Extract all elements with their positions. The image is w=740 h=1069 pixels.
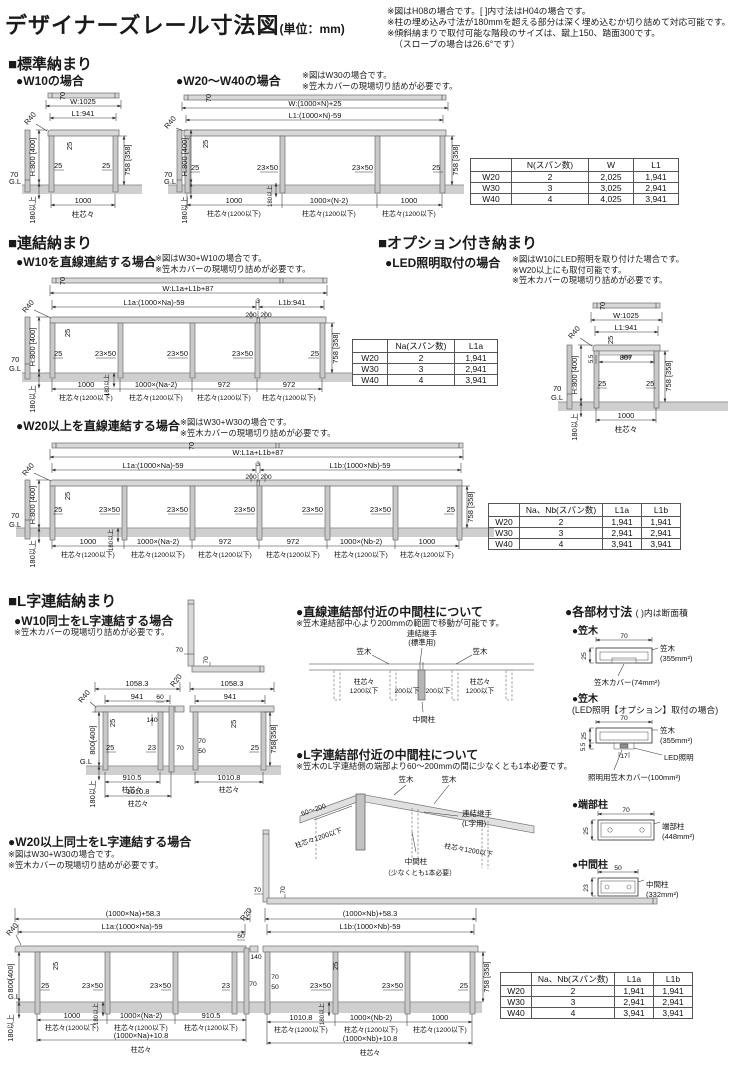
ground bbox=[558, 402, 728, 411]
dim: 25 bbox=[102, 161, 110, 170]
dim-embed: 180以上 bbox=[28, 540, 37, 568]
dim: 23×50 bbox=[167, 349, 188, 358]
dim: 70 bbox=[620, 715, 628, 722]
dim: 23×50 bbox=[82, 981, 103, 990]
dim-l1: L1:(1000×N)-59 bbox=[289, 111, 342, 120]
fence-left bbox=[95, 706, 184, 772]
dim-span: 1000×(Nb-2) bbox=[340, 537, 383, 546]
label: 柱芯々 bbox=[354, 677, 374, 686]
dim: 23×50 bbox=[302, 505, 323, 514]
note: ※図はW30+W30の場合です。 bbox=[180, 417, 335, 428]
dim-height: H:800 [400] bbox=[28, 486, 37, 525]
ground bbox=[16, 528, 494, 537]
dim: 758[358] bbox=[269, 724, 278, 753]
dim: 23×50 bbox=[99, 505, 120, 514]
dim: 25 bbox=[65, 142, 74, 150]
label-gl: G.L bbox=[9, 520, 21, 529]
dim-span: 910.5 bbox=[202, 1011, 221, 1020]
dim-w: 1058.3 bbox=[221, 679, 244, 688]
dim: 200 bbox=[260, 474, 272, 481]
label-span: 柱芯々(1200以下) bbox=[59, 393, 113, 402]
fence bbox=[177, 130, 446, 193]
dim: 5.5 bbox=[589, 354, 595, 363]
dim-l1a: L1a:(1000×Na)-59 bbox=[123, 298, 184, 307]
dim-embed: 180以上 bbox=[103, 374, 111, 396]
dim: 23 bbox=[222, 981, 230, 990]
dim: 758 [358] bbox=[466, 491, 475, 522]
fence bbox=[25, 317, 326, 379]
dim: 25 bbox=[646, 379, 654, 388]
label-mid-post: 中間柱 bbox=[413, 714, 436, 724]
dim: 70 bbox=[280, 886, 287, 894]
dim-l1a: L1a:(1000×Na)-59 bbox=[101, 922, 162, 931]
dim-span: 1000 bbox=[226, 196, 243, 205]
diagram-w2040: 70 W:(1000×N)+25 L1:(1000×N)-59 R40 25 H… bbox=[164, 86, 470, 232]
label-gl: G.L bbox=[9, 177, 21, 186]
note: ※図はW30の場合です。 bbox=[302, 70, 457, 81]
dim: 23×50 bbox=[370, 505, 391, 514]
note: ※笠木カバーの現場切り詰めが必要です。 bbox=[512, 275, 684, 286]
page-title: デザイナーズレール寸法図(単位：mm) bbox=[5, 8, 345, 40]
dim: 25 bbox=[251, 743, 259, 752]
dim: 25 bbox=[108, 719, 117, 727]
table-standard: N(スパン数)WL1 W2022,0251,941 W3033,0252,941… bbox=[470, 158, 679, 205]
note: ※図はH08の場合です。[ ]内寸法はH04の場合です。 bbox=[387, 6, 730, 17]
ground bbox=[22, 185, 142, 194]
dim: 70 bbox=[271, 974, 279, 981]
label-span: 柱芯々 bbox=[615, 424, 638, 434]
w10c-notes: ※図はW30+W10の場合です。 ※笠木カバーの現場切り詰めが必要です。 bbox=[155, 253, 310, 274]
cap-rail-plan bbox=[52, 278, 327, 283]
dim: 758 [358] bbox=[482, 961, 491, 992]
dim-span: 1000 bbox=[401, 196, 418, 205]
dim-l1a: L1a:(1000×Na)-59 bbox=[122, 461, 183, 470]
dim: 70 bbox=[253, 887, 261, 894]
label-span: 柱芯々(1200以下) bbox=[184, 1023, 238, 1032]
diagram-w20-L: 70 70 R20 bbox=[8, 828, 668, 1069]
sub-title-parts: ●各部材寸法 ( )内は断面積 bbox=[565, 603, 688, 620]
dim-height: H:800 [400] bbox=[28, 328, 37, 367]
ground bbox=[86, 766, 281, 775]
table-row: W2021,941 bbox=[353, 353, 498, 364]
dim: 60 bbox=[237, 933, 245, 940]
dim-span: 972 bbox=[287, 537, 300, 546]
dim: 23×50 bbox=[352, 163, 373, 172]
label: 1200以下 bbox=[350, 687, 379, 695]
section-title-option: ■オプション付き納まり bbox=[378, 232, 537, 253]
dim-span: 1000 bbox=[618, 411, 635, 420]
diagram-mid-post-straight: 連結継手 (標準用) 笠木 笠木 柱芯々 1200以下 200以下 200以下 … bbox=[294, 626, 546, 730]
label: (355mm²) bbox=[660, 736, 693, 745]
table-row: W4044,0253,941 bbox=[471, 194, 679, 205]
label-span: 柱芯々(1200以下) bbox=[413, 1025, 467, 1034]
dim: 25 bbox=[51, 962, 60, 970]
dim: 758 [358] bbox=[664, 360, 673, 391]
label-span: 柱芯々(1200以下) bbox=[382, 209, 436, 218]
section-shape bbox=[596, 648, 652, 663]
dim: 200 bbox=[260, 312, 272, 319]
dim-height: H:800 [400] bbox=[180, 138, 189, 177]
dim: 140 bbox=[146, 717, 158, 724]
diagram-w10-L: 70 70 R20 1058.3 941 bbox=[8, 596, 300, 828]
label-kasagi: 笠木 bbox=[473, 646, 488, 656]
dim-height: H:800 [400] bbox=[570, 356, 579, 395]
part-title-kasagi-led: ●笠木 (LED照明【オプション】取付の場合) bbox=[572, 694, 718, 716]
dim: 25 bbox=[311, 349, 319, 358]
led-notes: ※図はW10にLED照明を取り付けた場合です。 ※W20以上にも取付可能です。 … bbox=[512, 254, 684, 286]
dim-span: 972 bbox=[283, 380, 296, 389]
label-span: 柱芯々 bbox=[131, 1045, 151, 1054]
table-row: W2021,9411,941 bbox=[501, 986, 693, 997]
dim: 17 bbox=[620, 753, 628, 760]
dim-span: 972 bbox=[218, 380, 231, 389]
label-gl: G.L bbox=[9, 364, 21, 373]
dim-r20: R20 bbox=[168, 672, 184, 688]
label-span: 柱芯々(1200以下) bbox=[266, 550, 320, 559]
label-span: 柱芯々(1200以下) bbox=[197, 393, 251, 402]
note: ※柱の埋め込み寸法が180mmを超える部分は深く埋め込むか切り詰めて対応可能です… bbox=[387, 17, 730, 28]
dim: 70 bbox=[11, 355, 19, 364]
table-row: W3033,0252,941 bbox=[471, 183, 679, 194]
dim-span: 1000 bbox=[64, 1011, 81, 1020]
dim-span: 910.5 bbox=[123, 773, 142, 782]
table-row: W3032,9412,941 bbox=[501, 997, 693, 1008]
dim: 70 bbox=[249, 981, 257, 988]
dim: 25 bbox=[581, 732, 588, 740]
dim: 70 bbox=[553, 384, 561, 393]
dim-w: W:(1000×N)+25 bbox=[288, 99, 341, 108]
dim: 200 bbox=[245, 312, 257, 319]
label-span: 柱芯々(1200以下) bbox=[45, 1023, 99, 1032]
dim: 25 bbox=[54, 161, 62, 170]
label-kasagi: 笠木 bbox=[399, 774, 414, 784]
dim: 3 bbox=[256, 461, 260, 468]
dim-embed: 180以上 bbox=[92, 1003, 100, 1025]
section-title-standard: ■標準納まり bbox=[8, 53, 92, 74]
dim-span: 1000×(Na-2) bbox=[137, 537, 180, 546]
table-row: W3032,941 bbox=[353, 364, 498, 375]
table-row: W4043,9413,941 bbox=[501, 1008, 693, 1019]
dim: 25 bbox=[447, 505, 455, 514]
dim-l1b: L1b:(1000×Nb)-59 bbox=[339, 922, 400, 931]
dim-embed: 180以上 bbox=[318, 1003, 326, 1025]
note: ※図はW10にLED照明を取り付けた場合です。 bbox=[512, 254, 684, 265]
label-kasagi: 笠木 bbox=[442, 774, 457, 784]
table-row: W2021,9411,941 bbox=[489, 517, 681, 528]
dim-embed: 180以上 bbox=[28, 196, 37, 224]
dim-span: 1000×(N-2) bbox=[310, 196, 349, 205]
dim: 50 bbox=[198, 748, 206, 755]
label-span: 柱芯々 bbox=[360, 1048, 380, 1057]
dim: 140 bbox=[250, 954, 262, 961]
dim-r40: R40 bbox=[4, 921, 20, 937]
dim: 25 bbox=[460, 981, 468, 990]
label: 笠木カバー(74mm²) bbox=[594, 677, 660, 687]
dimension-drawing-page: デザイナーズレール寸法図(単位：mm) ※図はH08の場合です。[ ]内寸法はH… bbox=[0, 0, 740, 1069]
label-kasagi: 笠木 bbox=[357, 646, 372, 656]
dim: 50 bbox=[271, 984, 279, 991]
dim-span: 1000×(Na-2) bbox=[135, 380, 178, 389]
dim-r40: R40 bbox=[20, 461, 36, 477]
dim: 23×50 bbox=[150, 981, 171, 990]
dim-r40: R40 bbox=[20, 298, 36, 314]
ground bbox=[22, 373, 352, 382]
dim: 23×50 bbox=[257, 163, 278, 172]
label-gl: G.L bbox=[551, 393, 563, 402]
part-kasagi: 70 25 笠木 (355mm²) 笠木カバー(74mm²) bbox=[566, 634, 740, 690]
label-span: 柱芯々(1200以下) bbox=[207, 209, 261, 218]
title-text: デザイナーズレール寸法図 bbox=[5, 13, 279, 38]
dim: 25 bbox=[581, 652, 588, 660]
label-span: 柱芯々 bbox=[128, 799, 148, 808]
part-kasagi-led: 70 25 5.5 17 笠木 (355mm²) LED照明 照明用笠木カバー(… bbox=[566, 718, 740, 786]
dim: 25 bbox=[432, 163, 440, 172]
dimension-lines bbox=[90, 682, 274, 798]
table-w20-L: Na、Nb(スパン数)L1aL1b W2021,9411,941 W3032,9… bbox=[500, 972, 693, 1019]
dim-embed: 180以上 bbox=[28, 385, 37, 413]
dim: 25 bbox=[606, 336, 615, 344]
label-span: 柱芯々(1200以下) bbox=[131, 550, 185, 559]
dim: 25 bbox=[63, 329, 72, 337]
dim-l1: 941 bbox=[131, 692, 144, 701]
dim-embed: 180以上 bbox=[88, 780, 97, 808]
dim-embed: 180以上 bbox=[266, 185, 274, 207]
dim: 70 bbox=[204, 94, 213, 102]
table-row: W4043,941 bbox=[353, 375, 498, 386]
label-span: 柱芯々(1200以下) bbox=[344, 1025, 398, 1034]
dim: 70 bbox=[598, 302, 607, 310]
diagram-led: 70 W:1025 L1:941 R40 25 5.5 807 H:800 [4… bbox=[550, 286, 740, 436]
dim-embed: 180以上 bbox=[180, 196, 189, 224]
label-span: 柱芯々(1200以下) bbox=[129, 393, 183, 402]
label: 笠木 bbox=[660, 643, 675, 653]
dim: 70 bbox=[620, 633, 628, 640]
dim: 200 bbox=[245, 474, 257, 481]
dim: 25 bbox=[63, 492, 72, 500]
label-span: 柱芯々 bbox=[219, 785, 239, 794]
dim: 200以下 bbox=[395, 687, 420, 695]
dim-w: (1000×Na)+58.3 bbox=[106, 909, 161, 918]
table-row: W4043,9413,941 bbox=[489, 539, 681, 550]
label-span: 柱芯々(1200以下) bbox=[274, 1025, 328, 1034]
label: 1200以下 bbox=[466, 687, 495, 695]
dim: 25 bbox=[201, 140, 210, 148]
table-row: W3032,9412,941 bbox=[489, 528, 681, 539]
dim-span: 1000 bbox=[80, 537, 97, 546]
label: 照明用笠木カバー(100mm²) bbox=[588, 772, 681, 782]
diagram-w20-connect: 70 W:L1a+L1b+87 L1a:(1000×Na)-59 bbox=[8, 432, 500, 582]
dim: 25 bbox=[191, 163, 199, 172]
table-w20-connect: Na、Nb(スパン数)L1aL1b W2021,9411,941 W3032,9… bbox=[488, 503, 681, 550]
dim: 25 bbox=[331, 962, 340, 970]
dim-embed: 180以上 bbox=[107, 529, 115, 551]
note: ※図はW30+W10の場合です。 bbox=[155, 253, 310, 264]
dim-embed: 180以上 bbox=[570, 413, 579, 441]
dim-span: 1010.8 bbox=[290, 1013, 313, 1022]
dim: 25 bbox=[229, 720, 238, 728]
dim: 25 bbox=[106, 743, 114, 752]
sub-title-w10c: ●W10を直線連結する場合 bbox=[16, 253, 156, 270]
dim: 23×50 bbox=[95, 349, 116, 358]
dim-r40: R40 bbox=[162, 114, 178, 130]
note: ※傾斜納まりで取付可能な階段のサイズは、蹴上150、踏面300です。 bbox=[387, 28, 730, 39]
dim-span: 1000×(Na-2) bbox=[120, 1011, 163, 1020]
label-span: 柱芯々(1200以下) bbox=[198, 550, 252, 559]
dim: 70 bbox=[622, 807, 630, 814]
dim-height: 800[400] bbox=[88, 725, 97, 754]
label-span: 柱芯々(1200以下) bbox=[61, 550, 115, 559]
corner-plan bbox=[184, 600, 264, 672]
corner-plan bbox=[254, 830, 657, 904]
label: 柱芯々 bbox=[470, 677, 490, 686]
label-gl: G.L bbox=[8, 992, 20, 1001]
table-w10-connect: Na(スパン数)L1a W2021,941 W3032,941 W4043,94… bbox=[352, 339, 498, 386]
dim-l1b: L1b:(1000×Nb)-59 bbox=[329, 461, 390, 470]
label-span: 柱芯々(1200以下) bbox=[334, 550, 388, 559]
dim-total: (1000×Na)+10.8 bbox=[114, 1031, 169, 1040]
dim: 3 bbox=[256, 298, 260, 305]
dim-span: 1010.8 bbox=[127, 787, 150, 796]
dim: 25 bbox=[54, 505, 62, 514]
dim-w: W:1025 bbox=[613, 311, 639, 320]
dim: 758 [358] bbox=[123, 144, 132, 175]
label-joint: (L字用) bbox=[462, 818, 487, 828]
dim-span: 1000 bbox=[419, 537, 436, 546]
dim-l1: 941 bbox=[224, 692, 237, 701]
dim: 70 bbox=[11, 511, 19, 520]
dim-led: 807 bbox=[620, 353, 633, 362]
dim-span: 1000×(Nb-2) bbox=[350, 1013, 393, 1022]
dim: 23×50 bbox=[382, 981, 403, 990]
dim-l1: L1:941 bbox=[72, 109, 95, 118]
dim-span: 1000 bbox=[432, 1013, 449, 1022]
dim-r40: R40 bbox=[76, 688, 92, 704]
dim: 758 [358] bbox=[331, 332, 340, 363]
label-joint: 連結継手 bbox=[407, 628, 437, 638]
dim-w: W:1025 bbox=[70, 97, 96, 106]
label: 笠木 bbox=[660, 725, 675, 735]
label-span: 柱芯々(1200以下) bbox=[400, 550, 454, 559]
dim: 70 bbox=[203, 656, 210, 664]
dim-r40: R40 bbox=[566, 324, 582, 340]
dim: 70 bbox=[58, 277, 67, 285]
label-joint: (標準用) bbox=[408, 637, 436, 647]
dim: 70 bbox=[175, 647, 183, 654]
section-shape bbox=[596, 728, 652, 749]
dim: 23×50 bbox=[310, 981, 331, 990]
dim: 758 [358] bbox=[451, 144, 460, 175]
dim-height: 800[400] bbox=[6, 963, 15, 992]
header-notes: ※図はH08の場合です。[ ]内寸法はH04の場合です。 ※柱の埋め込み寸法が1… bbox=[387, 6, 730, 50]
label-span: 柱芯々(1200以下) bbox=[262, 393, 316, 402]
table-row: W2022,0251,941 bbox=[471, 172, 679, 183]
dim-embed: 180以上 bbox=[6, 1014, 15, 1042]
dim: 200以下 bbox=[426, 687, 451, 695]
dim-w: W:L1a+L1b+87 bbox=[162, 284, 213, 293]
dim-height: H:800 [400] bbox=[28, 138, 37, 177]
dim: 70 bbox=[198, 738, 206, 745]
dim: 23×50 bbox=[167, 505, 188, 514]
note: ※W20以上にも取付可能です。 bbox=[512, 265, 684, 276]
label: LED照明 bbox=[664, 753, 694, 762]
ground bbox=[168, 185, 464, 194]
label-span: 柱芯々(1200以下) bbox=[302, 209, 356, 218]
dim-w: (1000×Nb)+58.3 bbox=[343, 909, 398, 918]
dim-l1: L1:941 bbox=[615, 323, 638, 332]
dim: 5.5 bbox=[581, 742, 587, 751]
dim: 23 bbox=[148, 743, 156, 752]
dim: 23×50 bbox=[234, 505, 255, 514]
dim: 70 bbox=[58, 92, 67, 100]
diagram-w10-connect: 70 W:L1a+L1b+87 L1a:(1000×Na)-59 3 L1b bbox=[8, 272, 358, 414]
label-joint: 連結継手 bbox=[462, 808, 492, 818]
dim-span: 1000 bbox=[75, 196, 92, 205]
label-span: 柱芯々 bbox=[72, 209, 95, 219]
dim-r20: R20 bbox=[238, 906, 254, 922]
label: (355mm²) bbox=[660, 654, 693, 663]
dim-r40: R40 bbox=[22, 110, 38, 126]
dim-span: 1010.8 bbox=[218, 773, 241, 782]
dim-l1b: L1b:941 bbox=[278, 298, 305, 307]
note: （スロープの場合は26.6°です） bbox=[387, 39, 730, 50]
dim-span: 1000 bbox=[78, 380, 95, 389]
dim-w: 1058.3 bbox=[126, 679, 149, 688]
dim-total: (1000×Nb)+10.8 bbox=[343, 1034, 398, 1043]
label-gl: G.L bbox=[80, 757, 92, 766]
title-unit: (単位：mm) bbox=[279, 22, 344, 36]
dim: 70 bbox=[176, 745, 184, 752]
dim-w: W:L1a+L1b+87 bbox=[232, 448, 283, 457]
dim: 25 bbox=[598, 379, 606, 388]
dim: 25 bbox=[54, 349, 62, 358]
label-gl: G.L bbox=[164, 177, 176, 186]
dim: 25 bbox=[41, 981, 49, 990]
dim: 60 bbox=[156, 694, 164, 701]
dim: 23×50 bbox=[232, 349, 253, 358]
dim-span: 972 bbox=[219, 537, 232, 546]
section-title-renketsu: ■連結納まり bbox=[8, 232, 92, 253]
sub-title-led: ●LED照明取付の場合 bbox=[385, 254, 500, 271]
dim: 70 bbox=[187, 442, 196, 450]
